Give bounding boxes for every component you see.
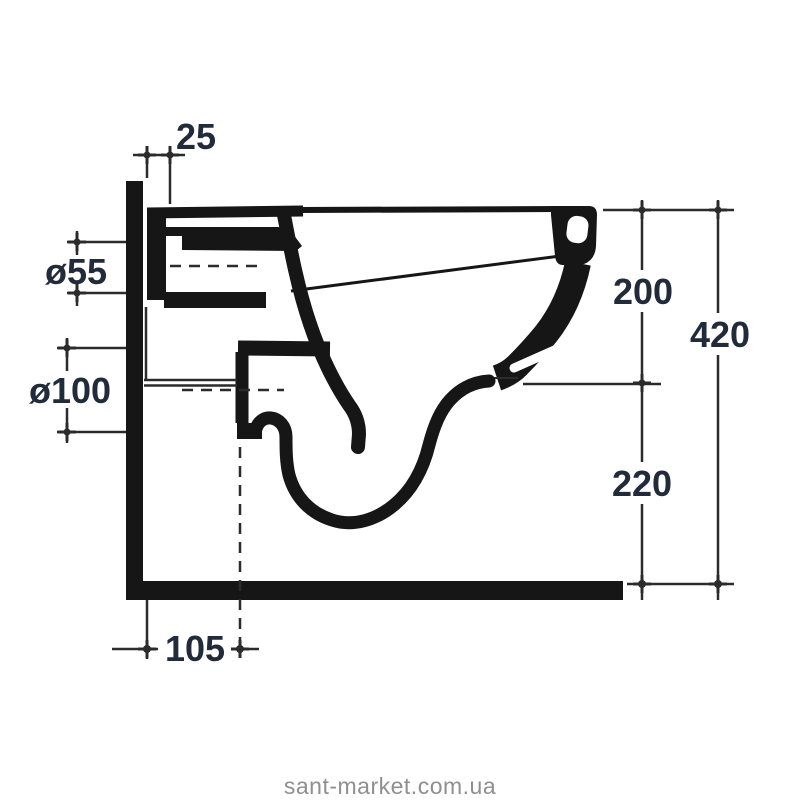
dimension-label-105: 105 <box>165 628 225 669</box>
dimension-label-200: 200 <box>613 271 673 312</box>
dimension-label-25: 25 <box>176 116 216 157</box>
technical-drawing: 25 ø55 ø100 200 420 220 105 sant-market.… <box>0 0 800 800</box>
dimension-label-220: 220 <box>612 463 672 504</box>
dimension-label-100: ø100 <box>29 370 111 411</box>
inlet-bottom-wall <box>151 292 266 308</box>
trap-outline <box>256 381 489 523</box>
dimension-label-420: 420 <box>690 314 750 355</box>
bowl-inner-line <box>291 255 568 291</box>
watermark-text: sant-market.com.ua <box>284 773 496 799</box>
weir-tongue <box>284 215 359 447</box>
outlet-spigot-top <box>238 348 330 349</box>
pan-back-face <box>147 209 166 300</box>
drawing-canvas: 25 ø55 ø100 200 420 220 105 sant-market.… <box>0 0 800 800</box>
toilet-pan-outline <box>144 206 597 643</box>
dimension-label-55: ø55 <box>45 251 107 292</box>
rim-top-line-right <box>300 209 560 210</box>
